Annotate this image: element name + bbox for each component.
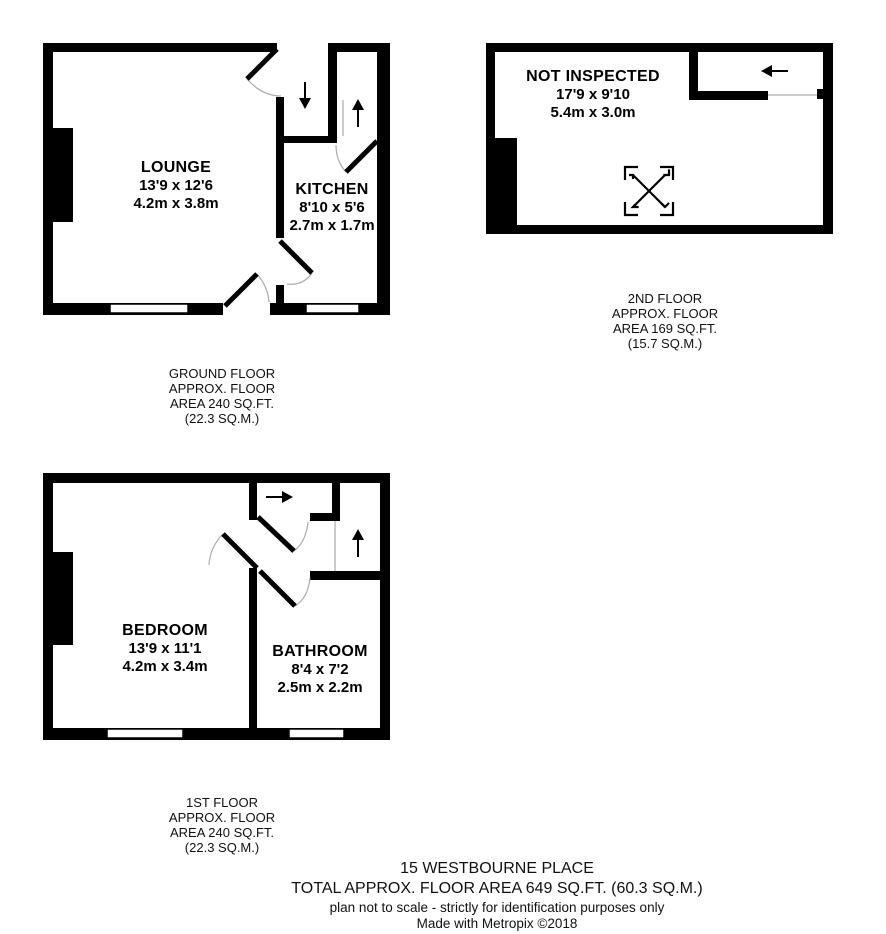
wall — [43, 43, 277, 52]
property-address: 15 WESTBOURNE PLACE — [102, 859, 886, 879]
floor-summary-line: APPROX. FLOOR — [612, 306, 718, 321]
room-dimensions-metric: 2.5m x 2.2m — [272, 679, 367, 697]
door-leaf — [247, 49, 277, 79]
chimney-breast — [486, 138, 517, 228]
room-label-bedroom: BEDROOM 13'9 x 11'1 4.2m x 3.4m — [122, 622, 208, 676]
floor-summary-line: AREA 169 SQ.FT. — [612, 321, 718, 336]
floorplan-drawing — [0, 0, 886, 934]
door-arc — [209, 534, 223, 565]
floor-summary-line: (22.3 SQ.M.) — [169, 840, 275, 855]
wall — [486, 225, 833, 234]
wall — [332, 483, 340, 515]
room-name: BATHROOM — [272, 643, 367, 661]
plan-footer: 15 WESTBOURNE PLACE TOTAL APPROX. FLOOR … — [102, 859, 886, 932]
window — [306, 304, 359, 313]
room-name: LOUNGE — [133, 159, 218, 177]
room-dimensions-imperial: 13'9 x 11'1 — [122, 640, 208, 658]
floor-summary-line: AREA 240 SQ.FT. — [169, 825, 275, 840]
door-arc — [247, 79, 281, 96]
not-inspected-cross-icon — [625, 167, 673, 215]
door-leaf — [225, 274, 257, 306]
chimney-breast — [51, 552, 73, 645]
wall — [249, 483, 257, 520]
floor-summary-line: APPROX. FLOOR — [169, 381, 275, 396]
room-name: BEDROOM — [122, 622, 208, 640]
door-arc — [294, 522, 308, 551]
floorplan-page: { "colors": { "wall": "#000000", "backgr… — [0, 0, 886, 934]
wall — [328, 52, 337, 143]
room-label-kitchen: KITCHEN 8'10 x 5'6 2.7m x 1.7m — [289, 181, 374, 235]
door-arc — [295, 578, 310, 606]
floor-summary-line: GROUND FLOOR — [169, 366, 275, 381]
wall — [823, 43, 833, 234]
wall — [817, 89, 823, 99]
window — [107, 729, 183, 738]
wall — [276, 136, 337, 143]
door-arc — [287, 273, 312, 284]
floor-summary-ground: GROUND FLOOR APPROX. FLOOR AREA 240 SQ.F… — [169, 366, 275, 426]
room-dimensions-metric: 2.7m x 1.7m — [289, 217, 374, 235]
room-name: NOT INSPECTED — [526, 68, 660, 86]
room-label-not-inspected: NOT INSPECTED 17'9 x 9'10 5.4m x 3.0m — [526, 68, 660, 122]
floor-summary-first: 1ST FLOOR APPROX. FLOOR AREA 240 SQ.FT. … — [169, 795, 275, 855]
stairs-left-arrow-icon — [761, 65, 788, 77]
door-arc — [257, 274, 269, 302]
room-dimensions-metric: 4.2m x 3.8m — [133, 195, 218, 213]
room-label-bathroom: BATHROOM 8'4 x 7'2 2.5m x 2.2m — [272, 643, 367, 697]
room-dimensions-imperial: 17'9 x 9'10 — [526, 86, 660, 104]
floor-summary-line: 1ST FLOOR — [169, 795, 275, 810]
floor-summary-second: 2ND FLOOR APPROX. FLOOR AREA 169 SQ.FT. … — [612, 291, 718, 351]
floor-summary-line: (15.7 SQ.M.) — [612, 336, 718, 351]
stairs-up-arrow-icon — [352, 99, 364, 127]
wall — [310, 513, 340, 521]
door-arc — [336, 145, 346, 172]
stairs-up-arrow-icon — [352, 529, 364, 557]
first-floor-plan — [43, 473, 390, 740]
wall — [249, 568, 257, 728]
door-leaf — [280, 241, 312, 273]
floor-summary-line: 2ND FLOOR — [612, 291, 718, 306]
window — [289, 729, 344, 738]
window — [110, 304, 188, 313]
floor-summary-line: AREA 240 SQ.FT. — [169, 396, 275, 411]
total-floor-area: TOTAL APPROX. FLOOR AREA 649 SQ.FT. (60.… — [102, 879, 886, 899]
door-leaf — [223, 534, 257, 568]
stairs-down-arrow-icon — [299, 82, 311, 109]
door-leaf — [258, 517, 294, 551]
room-name: KITCHEN — [289, 181, 374, 199]
door-leaf — [260, 571, 295, 606]
room-dimensions-metric: 5.4m x 3.0m — [526, 104, 660, 122]
chimney-breast — [51, 128, 73, 222]
wall — [380, 473, 390, 740]
disclaimer-text: plan not to scale - strictly for identif… — [102, 899, 886, 916]
wall — [486, 43, 833, 52]
wall — [43, 473, 390, 483]
floor-summary-line: APPROX. FLOOR — [169, 810, 275, 825]
room-dimensions-imperial: 8'4 x 7'2 — [272, 661, 367, 679]
room-dimensions-metric: 4.2m x 3.4m — [122, 658, 208, 676]
wall — [689, 91, 768, 100]
wall — [276, 143, 284, 238]
room-dimensions-imperial: 8'10 x 5'6 — [289, 199, 374, 217]
room-label-lounge: LOUNGE 13'9 x 12'6 4.2m x 3.8m — [133, 159, 218, 213]
wall — [310, 571, 383, 580]
room-dimensions-imperial: 13'9 x 12'6 — [133, 177, 218, 195]
door-leaf — [346, 141, 377, 172]
wall — [377, 43, 390, 315]
floor-summary-line: (22.3 SQ.M.) — [169, 411, 275, 426]
stairs-right-arrow-icon — [266, 491, 293, 503]
wall — [276, 285, 284, 303]
metropix-credit: Made with Metropix ©2018 — [102, 916, 886, 932]
